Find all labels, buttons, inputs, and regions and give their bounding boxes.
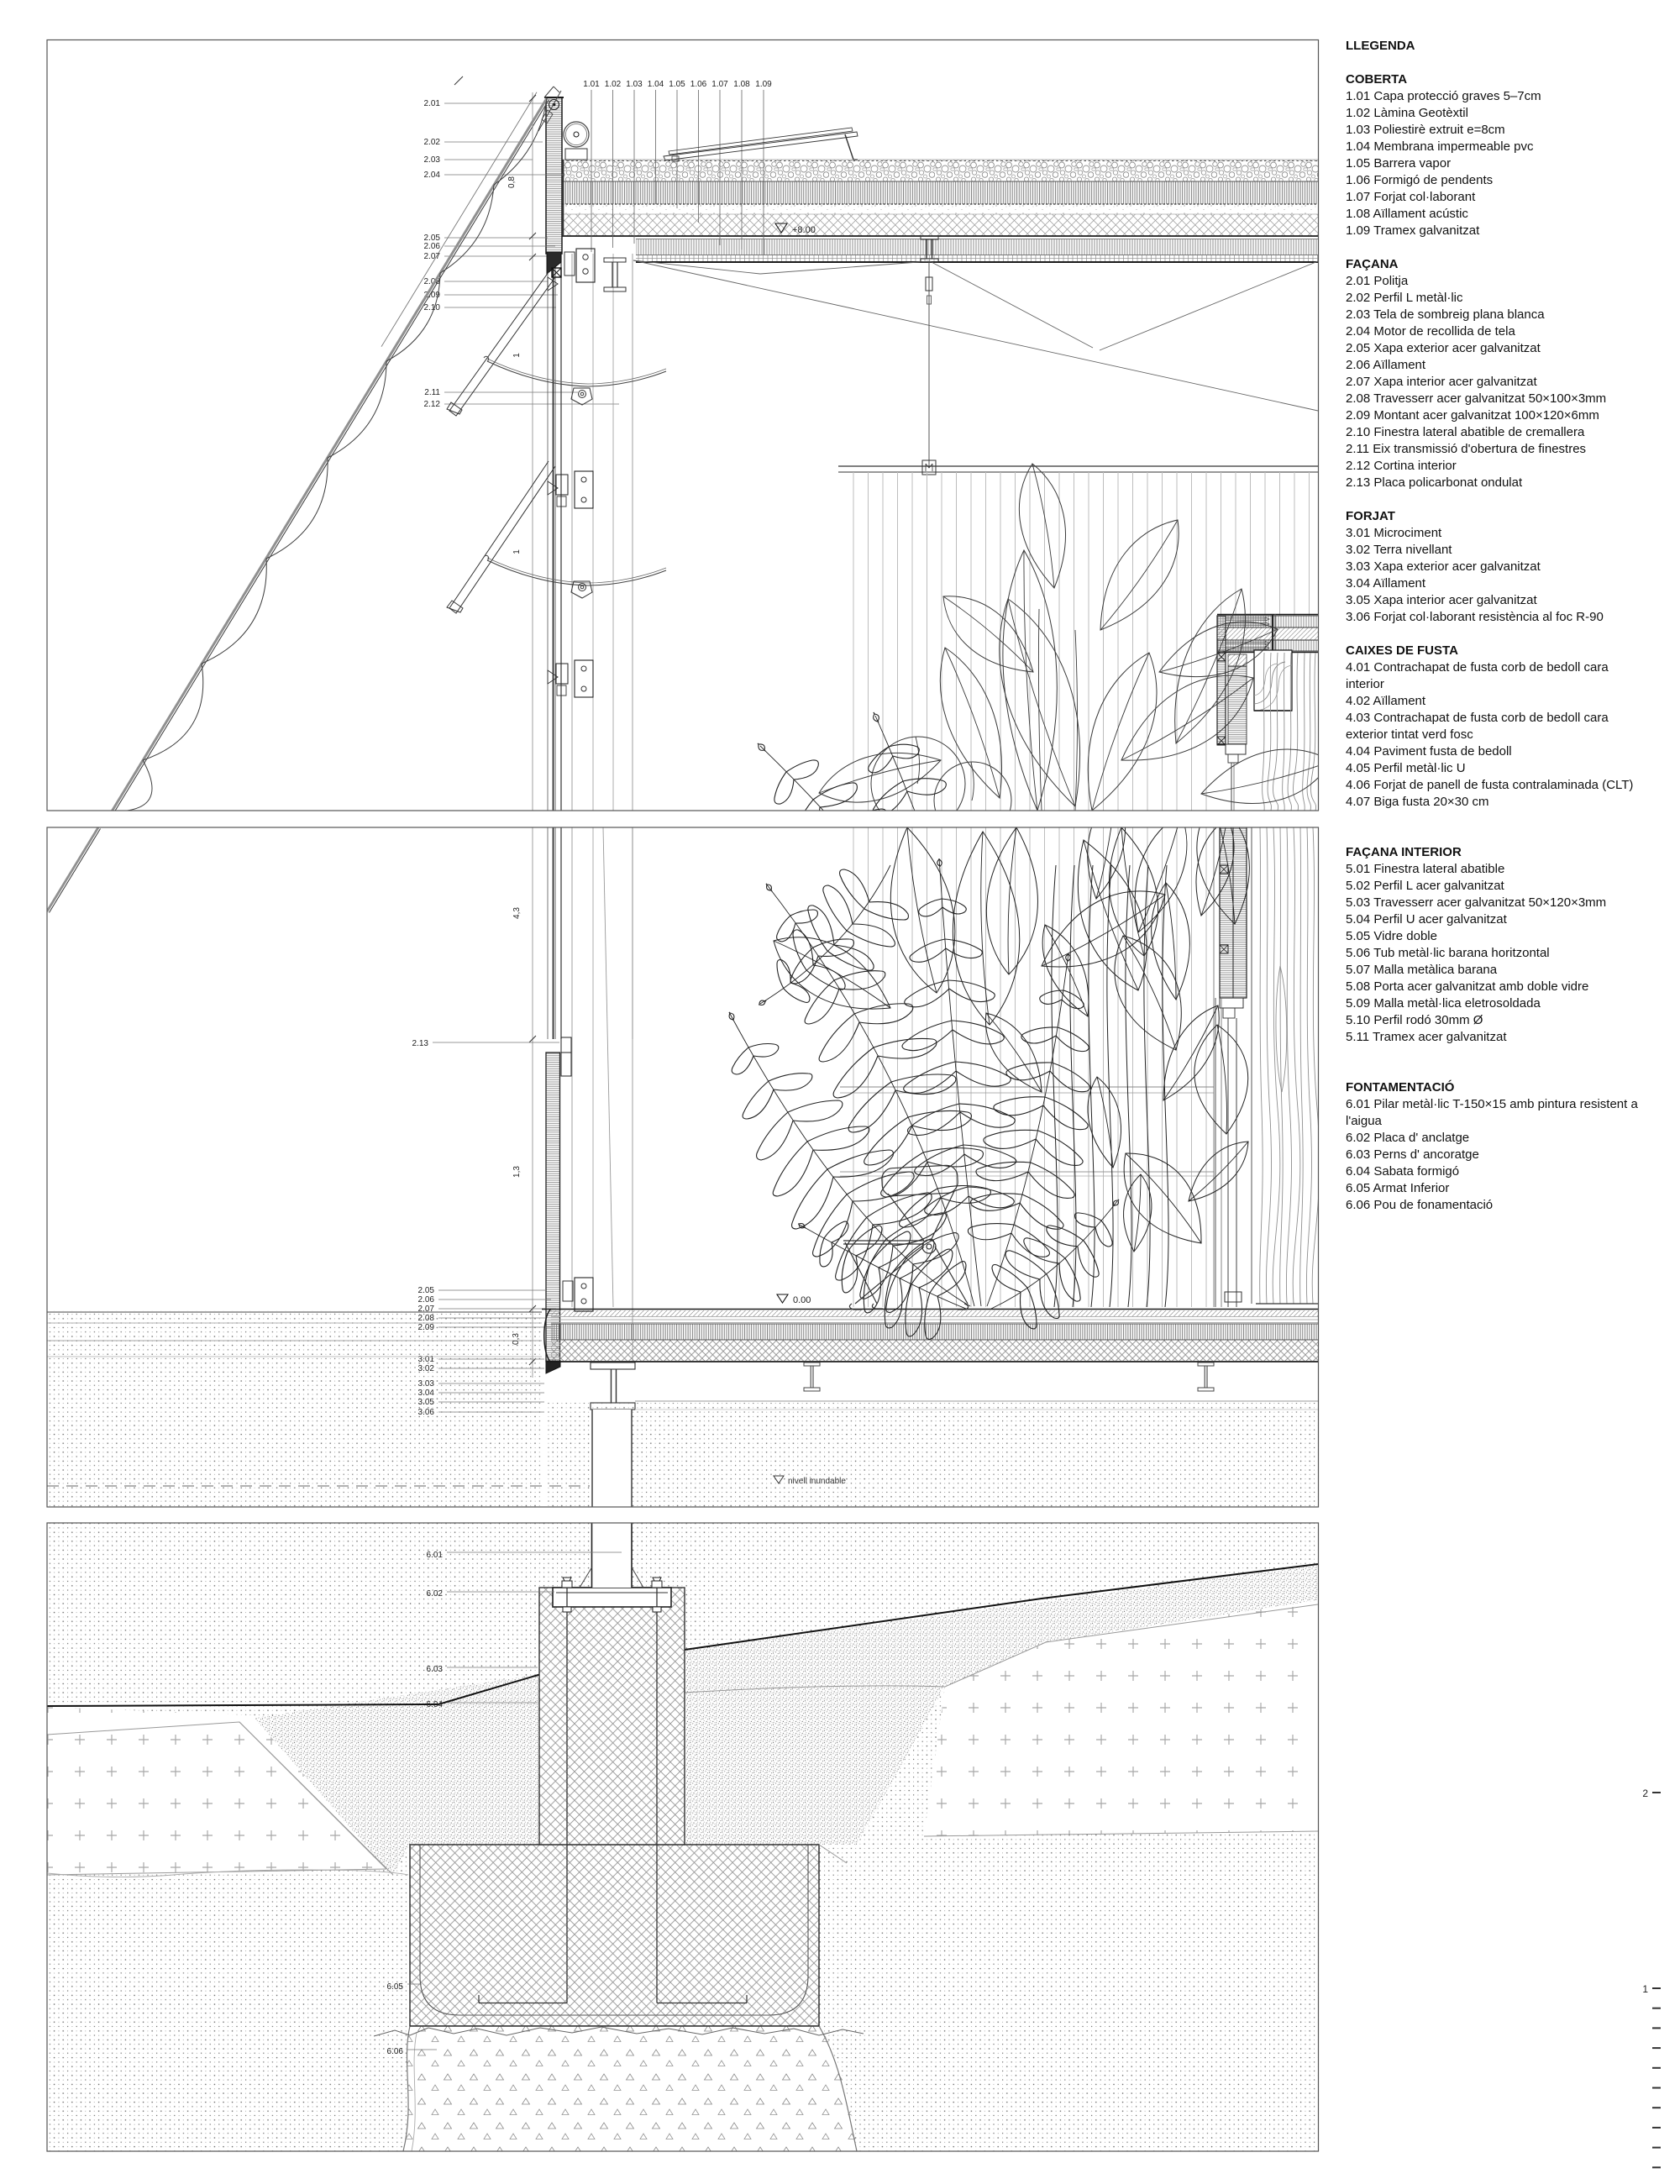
svg-text:2: 2 xyxy=(1642,1788,1648,1799)
svg-text:1.04: 1.04 xyxy=(648,80,664,89)
svg-text:2.11: 2.11 xyxy=(424,388,440,397)
svg-text:6.06: 6.06 xyxy=(387,2047,404,2056)
svg-text:1.05: 1.05 xyxy=(669,80,685,89)
svg-text:2.10: 2.10 xyxy=(424,303,441,312)
svg-text:0,8: 0,8 xyxy=(507,176,517,188)
svg-text:1: 1 xyxy=(512,353,522,358)
svg-text:1: 1 xyxy=(1642,1983,1648,1995)
svg-text:2.03: 2.03 xyxy=(424,155,441,165)
svg-text:1.08: 1.08 xyxy=(733,80,750,89)
svg-text:1.03: 1.03 xyxy=(626,80,643,89)
svg-text:+8.00: +8.00 xyxy=(792,225,816,235)
svg-text:6.02: 6.02 xyxy=(427,1589,444,1599)
svg-text:2.06: 2.06 xyxy=(418,1295,435,1305)
svg-text:1,3: 1,3 xyxy=(512,1166,522,1178)
svg-text:1.01: 1.01 xyxy=(583,80,600,89)
svg-text:2.05: 2.05 xyxy=(418,1286,435,1295)
svg-text:1.06: 1.06 xyxy=(690,80,707,89)
svg-text:1.02: 1.02 xyxy=(605,80,622,89)
svg-text:2.02: 2.02 xyxy=(424,138,441,147)
svg-text:1.09: 1.09 xyxy=(755,80,772,89)
svg-text:2.13: 2.13 xyxy=(412,1039,429,1048)
svg-text:4,3: 4,3 xyxy=(512,907,522,919)
svg-text:6.04: 6.04 xyxy=(427,1700,444,1709)
svg-text:6.03: 6.03 xyxy=(427,1665,444,1674)
svg-text:2.12: 2.12 xyxy=(424,400,441,409)
svg-text:2.06: 2.06 xyxy=(424,242,441,251)
svg-text:1: 1 xyxy=(512,549,522,554)
svg-text:0.00: 0.00 xyxy=(793,1295,811,1305)
svg-text:6.01: 6.01 xyxy=(427,1551,444,1560)
svg-text:nivell inundable: nivell inundable xyxy=(788,1477,846,1486)
svg-text:2.01: 2.01 xyxy=(424,99,441,108)
svg-text:2.04: 2.04 xyxy=(424,171,441,180)
svg-text:6.05: 6.05 xyxy=(387,1982,404,1992)
svg-text:1.07: 1.07 xyxy=(711,80,728,89)
